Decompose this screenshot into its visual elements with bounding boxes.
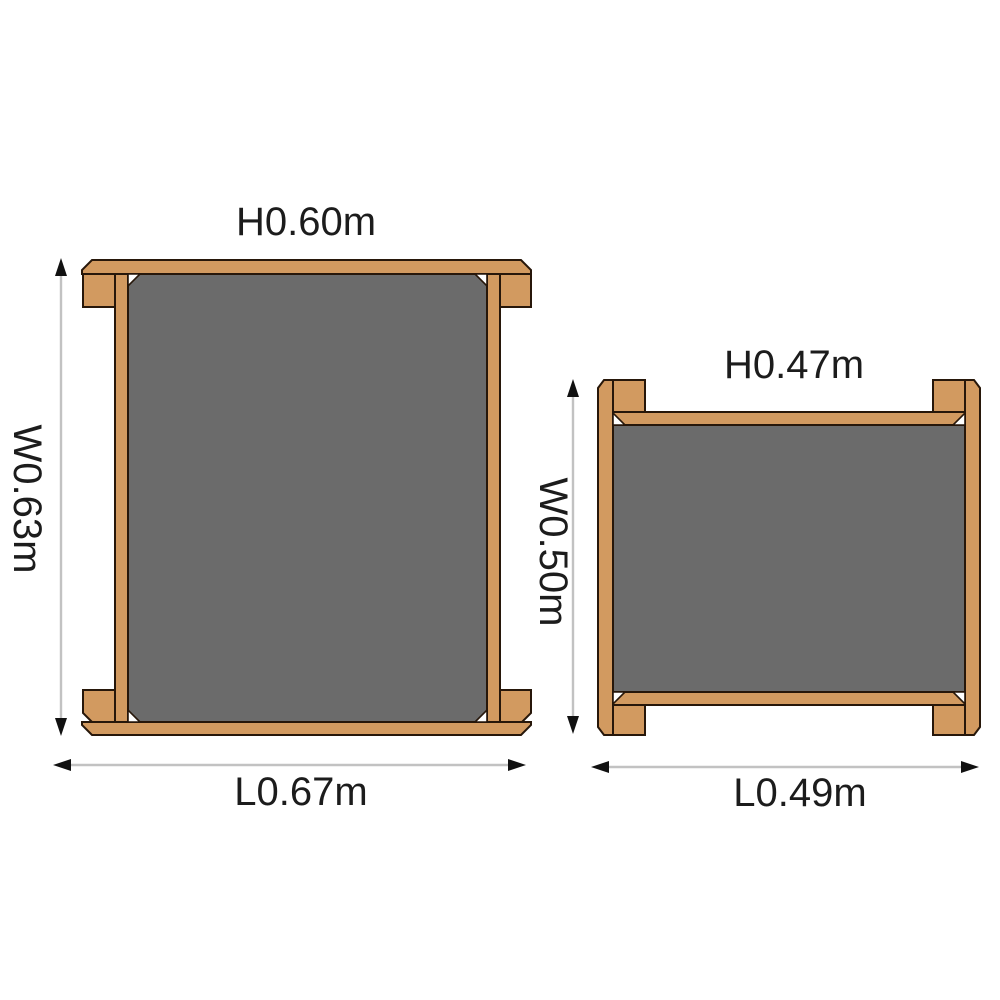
small-table-bottom-rail: [613, 692, 965, 705]
dimension-diagram-canvas: H0.60m W0.63m L0.67m: [0, 0, 1000, 1000]
large-table-leg-bottom-right: [499, 690, 531, 722]
arrowhead-left-icon: [53, 759, 71, 771]
large-width-label: W0.63m: [5, 425, 49, 574]
large-table-bottom-rail: [82, 722, 531, 735]
large-table-side-rail-right: [487, 274, 500, 722]
small-table-leg-top-left: [613, 380, 645, 412]
small-table-panel: [611, 420, 967, 698]
arrowhead-right-icon: [508, 759, 526, 771]
small-table-side-rail-right: [965, 380, 980, 735]
large-table-top-rail: [82, 260, 531, 274]
arrowhead-up-icon: [55, 258, 67, 276]
small-length-label: L0.49m: [733, 771, 866, 815]
small-table-drawing: [598, 380, 980, 735]
dimension-diagram-page: H0.60m W0.63m L0.67m: [0, 0, 1000, 1000]
arrowhead-right-icon: [961, 761, 979, 773]
small-table-top-rail: [613, 412, 965, 425]
small-table-leg-bottom-right: [933, 705, 965, 735]
large-table-panel: [126, 268, 489, 726]
large-table-drawing: [82, 260, 531, 735]
arrowhead-up-icon: [567, 379, 579, 397]
small-table-leg-bottom-left: [613, 705, 645, 735]
arrowhead-down-icon: [567, 716, 579, 734]
large-table-leg-top-left: [83, 274, 115, 307]
arrowhead-left-icon: [591, 761, 609, 773]
small-table-leg-top-right: [933, 380, 965, 412]
small-table-side-rail-left: [598, 380, 613, 735]
arrowhead-down-icon: [55, 718, 67, 736]
large-length-label: L0.67m: [234, 770, 367, 814]
large-table-leg-top-right: [499, 274, 531, 307]
large-table-side-rail-left: [115, 274, 128, 722]
small-height-label: H0.47m: [724, 343, 864, 387]
large-table-leg-bottom-left: [83, 690, 115, 722]
large-height-label: H0.60m: [236, 200, 376, 244]
small-width-label: W0.50m: [531, 478, 575, 627]
